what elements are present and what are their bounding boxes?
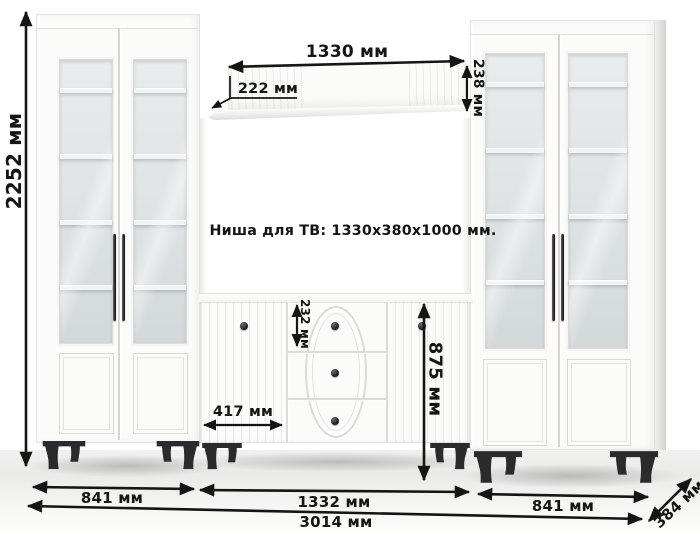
left-cabinet-glass-door-right <box>133 59 187 344</box>
dim-top-drawer-height-label: 232 мм <box>298 299 312 349</box>
right-cabinet <box>470 20 655 450</box>
left-cabinet-handle <box>113 234 116 321</box>
glass-reflection <box>486 54 544 348</box>
furniture-dimension-diagram: 2252 мм 1330 мм 222 мм 238 мм 232 мм 875… <box>0 0 700 534</box>
glass-reflection <box>569 54 627 348</box>
glass-reflection <box>60 60 112 343</box>
dim-commode-width-label: 1332 мм <box>298 493 371 511</box>
tv-niche-label: Ниша для ТВ: 1330x380x1000 мм. <box>210 223 497 239</box>
right-cabinet-lower-panel-right <box>567 359 631 446</box>
dim-shelf-height-label: 238 мм <box>470 59 486 117</box>
dim-shelf-width-label: 1330 мм <box>306 42 388 62</box>
left-cabinet-door-gap <box>118 28 120 440</box>
commode-drawer-gap-2 <box>288 398 386 400</box>
dim-shelf-ledge-depth-label: 222 мм <box>238 81 298 97</box>
left-cabinet-leg-left <box>42 441 86 470</box>
right-cabinet-top-rail <box>471 34 654 35</box>
right-cabinet-glass-door-left <box>485 53 545 349</box>
drawer-knob-3 <box>331 417 339 425</box>
commode-gap-left <box>286 302 288 442</box>
dim-left-cabinet-width-label: 841 мм <box>81 489 143 507</box>
right-cabinet-leg-left <box>474 450 522 485</box>
commode-door-knob-right <box>418 322 426 330</box>
wall-shelf-fluting-right <box>409 62 464 107</box>
right-cabinet-handle <box>552 234 555 321</box>
glass-reflection <box>134 60 186 343</box>
left-cabinet-lower-panel-left <box>59 353 114 434</box>
left-cabinet <box>36 14 200 443</box>
right-cabinet-glass-door-right <box>568 53 628 349</box>
left-cabinet-glass-door-left <box>59 59 113 344</box>
right-cabinet-leg-right <box>610 450 658 485</box>
commode-drawer-gap-1 <box>288 351 386 353</box>
dim-total-height-label: 2252 мм <box>2 113 26 210</box>
dim-commode-height-label: 875 мм <box>425 342 446 416</box>
left-cabinet-lower-panel-right <box>133 353 188 434</box>
right-cabinet-handle <box>561 234 564 321</box>
dim-right-cabinet-width-label: 841 мм <box>532 497 594 515</box>
left-cabinet-handle <box>122 234 125 321</box>
dim-door-width-label: 417 мм <box>213 404 273 420</box>
commode-door-knob-left <box>240 322 248 330</box>
dim-total-width-label: 3014 мм <box>300 513 373 531</box>
niche-right-shadow <box>462 118 470 294</box>
right-cabinet-side-panel <box>655 20 666 450</box>
drawer-knob-2 <box>331 369 339 377</box>
commode-leg-left <box>202 443 242 470</box>
right-cabinet-door-gap <box>558 34 560 447</box>
right-cabinet-lower-panel-left <box>483 359 547 446</box>
left-cabinet-leg-right <box>156 441 200 470</box>
commode-leg-right <box>430 443 470 470</box>
commode-gap-right <box>386 302 388 442</box>
drawer-knob-1 <box>331 322 339 330</box>
niche-left-shadow <box>200 118 207 294</box>
